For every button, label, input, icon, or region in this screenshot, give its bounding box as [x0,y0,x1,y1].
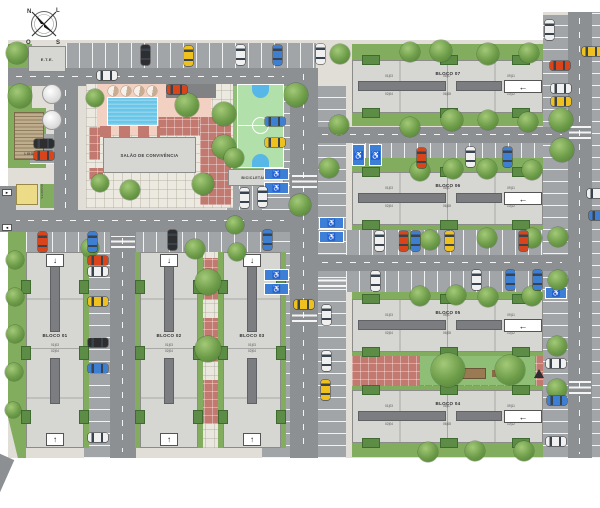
car-white-25 [466,147,475,167]
tree-8 [91,174,109,192]
bloco-04-notch-top-2 [512,385,530,395]
tree-14 [192,173,214,195]
tree-25 [430,40,452,62]
road-right-upper-dash [322,134,562,135]
water-tank-2 [42,110,62,130]
tree-51 [548,227,568,247]
car-white-19 [88,267,108,276]
bloco-03-units-bottom: 02|04 [223,350,281,353]
gate-arrow-out: ◄ [2,224,12,231]
car-yellow-12 [265,138,285,147]
bloco-01-corridor-2 [50,358,60,404]
bloco-01-notch-right-2 [79,410,89,424]
bloco-05-corridor-2 [456,320,502,330]
bloco-06-units-5: 10|12 [500,205,522,208]
salao-label: SALÃO DE CONVIVÊNCIA [121,153,179,158]
car-yellow-40 [582,47,600,56]
tree-4 [6,325,24,343]
tree-41 [446,285,466,305]
crosswalk-5 [292,312,317,322]
tree-27 [519,43,539,63]
bloco-02-entry-arrow-top: ↓ [160,254,178,267]
crosswalk-3 [569,381,591,394]
tree-19 [185,239,205,259]
car-blue-22 [88,364,108,373]
accessible-parking-icon-4: ♿ [264,168,289,180]
car-white-33 [472,270,481,290]
bloco-03-corridor-1 [247,258,257,332]
bloco-04-units-0: 01|03 [378,405,400,408]
bloco-07-units-0: 01|03 [378,75,400,78]
bloco-06-units-4: 09|11 [500,187,522,190]
bloco-01-corridor-1 [50,258,60,332]
tree-11 [175,93,199,117]
car-blue-26 [503,147,512,167]
parking-left-row [26,230,290,252]
road-top-dash [16,76,284,77]
bloco-07-corridor-1 [358,81,446,91]
tree-53 [547,336,567,356]
accessible-parking-icon-7: ♿ [264,283,289,295]
bloco-02-units-bottom: 02|04 [140,350,198,353]
bloco-04-units-5: 10|12 [500,423,522,426]
car-red-6 [167,85,187,94]
car-yellow-38 [321,380,330,400]
bloco-05-units-4: 09|11 [500,314,522,317]
car-dark-7 [34,139,54,148]
car-white-46 [546,437,566,446]
bloco-02-corridor-2 [164,358,174,404]
car-white-10 [258,187,267,207]
bloco-02-notch-left-2 [135,410,145,424]
playground-equipment [462,368,486,379]
car-white-37 [322,351,331,371]
bloco-02-corridor-1 [164,258,174,332]
ete-label: E.T.E. [41,57,53,62]
accessible-parking-icon-1: ♿ [369,144,382,166]
bloco-02-units-top: 01|03 [140,344,198,347]
car-yellow-43 [551,97,571,106]
site-plan: SALÃO DE CONVIVÊNCIA BICICLETÁRIO E.T.E.… [0,0,600,500]
tree-2 [6,251,24,269]
bloco-06-notch-bottom-0 [362,220,380,230]
car-red-18 [88,256,108,265]
tree-55 [195,269,221,295]
bloco-04-units-1: 02|04 [378,423,400,426]
tree-40 [410,286,430,306]
tree-22 [319,158,339,178]
accessible-parking-icon-0: ♿ [352,144,365,166]
tree-1 [8,84,32,108]
car-dark-16 [168,230,177,250]
bloco-07-units-2: 05|07 [436,75,458,78]
tree-35 [522,160,542,180]
car-red-41 [550,61,570,70]
bloco-06-corridor-1 [358,193,446,203]
bloco-06-units-3: 06|08 [436,205,458,208]
car-white-36 [322,305,331,325]
playground-marker [534,369,544,378]
car-dark-0 [141,45,150,65]
court-key-top [252,85,269,98]
road-right-lower-dash [322,262,562,263]
salao-de-convivencia: SALÃO DE CONVIVÊNCIA [103,137,196,173]
car-white-47 [587,189,600,198]
car-white-4 [316,44,325,64]
bloco-01-entry-arrow-bottom: ↑ [46,433,64,446]
tree-5 [5,363,23,381]
bloco-05-units-5: 10|12 [500,332,522,335]
tree-33 [443,159,463,179]
accessible-parking-icon-2: ♿ [319,217,344,229]
bloco-05-units-1: 02|04 [378,332,400,335]
bloco-06-notch-top-0 [362,167,380,177]
umbrella-2 [121,86,131,96]
car-white-42 [551,84,571,93]
crosswalk-2 [569,126,591,139]
tree-48 [514,441,534,461]
crosswalk-1 [111,236,135,248]
tree-20 [228,243,246,261]
red-path-left [89,127,100,160]
accessible-parking-icon-6: ♿ [264,269,289,281]
tree-16 [224,148,244,168]
car-blue-11 [265,117,285,126]
basketball-court [237,84,284,168]
tree-50 [550,138,574,162]
car-red-14 [38,232,47,252]
tree-31 [518,112,538,132]
guarita-label: GUARITA [38,184,44,206]
tree-34 [477,159,497,179]
compass-w: O [26,40,31,46]
bloco-02-label: BLOCO 02 [140,334,198,339]
car-blue-35 [533,270,542,290]
tree-49 [549,108,573,132]
car-blue-15 [88,232,97,252]
bloco-07-units-1: 02|04 [378,93,400,96]
tree-7 [86,89,104,107]
tree-30 [478,110,498,130]
tree-17 [289,194,311,216]
compass-n: N [27,9,31,15]
tree-28 [400,117,420,137]
bloco-07-units-3: 06|08 [436,93,458,96]
bloco-03-label: BLOCO 03 [223,334,281,339]
bloco-04-units-3: 06|08 [436,423,458,426]
road-bloco01-02-dash [122,238,123,452]
bloco-02-notch-right-2 [193,410,203,424]
car-white-23 [88,433,108,442]
bloco-01-label: BLOCO 01 [26,334,84,339]
bloco-01-units-top: 01|03 [26,344,84,347]
crosswalk-4 [318,278,346,287]
accessible-parking-icon-5: ♿ [264,182,289,194]
car-white-39 [545,20,554,40]
road-left-vertical-dash [65,90,66,208]
bloco-02-notch-left-0 [135,280,145,294]
car-yellow-1 [184,46,193,66]
car-red-28 [399,231,408,251]
bloco-01-notch-right-0 [79,280,89,294]
car-yellow-20 [88,297,108,306]
bloco-04-notch-bottom-1 [440,438,458,448]
car-blue-34 [506,270,515,290]
bloco-03-notch-right-2 [276,410,286,424]
bloco-03-units-top: 01|03 [223,344,281,347]
tree-12 [212,102,236,126]
tree-45 [495,355,525,385]
umbrella-1 [108,86,118,96]
bloco-01-units-bottom: 02|04 [26,350,84,353]
tree-0 [6,42,28,64]
bloco-04-notch-bottom-0 [362,438,380,448]
road-central-dash [303,74,304,452]
tree-38 [477,228,497,248]
tree-47 [465,441,485,461]
bloco-04-corridor-1 [358,411,446,421]
ete-building: E.T.E. [28,46,66,72]
parking-right-east [592,12,600,458]
car-blue-17 [263,230,272,250]
tree-52 [548,270,568,290]
compass-s: S [56,40,60,46]
car-white-44 [546,359,566,368]
bloco-03-entry-arrow-bottom: ↑ [243,433,261,446]
car-white-32 [371,271,380,291]
car-yellow-30 [445,231,454,251]
bloco-05-notch-top-0 [362,294,380,304]
tree-44 [431,353,465,387]
car-white-9 [240,188,249,208]
bloco-03-entry-arrow-top: ↓ [243,254,261,267]
court-key-bottom [252,154,269,167]
bloco-05-units-2: 05|07 [436,314,458,317]
tree-21 [329,115,349,135]
bloco-06-corridor-2 [456,193,502,203]
swimming-pool [107,97,158,126]
guarita [16,184,38,205]
bloco-04-units-4: 09|11 [500,405,522,408]
tree-29 [441,109,463,131]
bloco-04-corridor-2 [456,411,502,421]
red-path-h [158,117,203,136]
road-exit-diagonal [0,452,14,508]
car-red-8 [34,151,54,160]
tree-56 [195,336,221,362]
tree-18 [226,216,244,234]
bloco-05-notch-bottom-0 [362,347,380,357]
bloco-06-units-0: 01|03 [378,187,400,190]
crosswalk-0 [292,175,317,188]
tree-42 [478,287,498,307]
car-blue-29 [411,231,420,251]
tree-26 [477,43,499,65]
umbrella-3 [134,86,144,96]
bloco-06-notch-bottom-1 [440,220,458,230]
bloco-03-corridor-2 [247,358,257,404]
car-blue-48 [589,211,600,220]
tree-6 [5,402,21,418]
bloco-02-entry-arrow-bottom: ↑ [160,433,178,446]
car-white-27 [375,231,384,251]
umbrella-4 [147,86,157,96]
bloco-03-notch-left-2 [218,410,228,424]
car-blue-45 [547,396,567,405]
bloco-07-notch-bottom-0 [362,108,380,118]
tree-9 [120,180,140,200]
bloco-04-notch-top-0 [362,385,380,395]
bloco-01-entry-arrow-top: ↓ [46,254,64,267]
car-blue-3 [273,45,282,65]
car-white-2 [236,45,245,65]
bloco-07-units-4: 09|11 [500,75,522,78]
bloco-06-units-1: 02|04 [378,205,400,208]
bloco-07-corridor-2 [456,81,502,91]
car-dark-21 [88,338,108,347]
car-red-31 [519,231,528,251]
accessible-parking-icon-3: ♿ [319,231,344,243]
car-white-5 [97,71,117,80]
car-yellow-13 [294,300,314,309]
bloco-04-units-2: 05|07 [436,405,458,408]
bloco-05-corridor-1 [358,320,446,330]
tree-15 [284,83,308,107]
bloco-01-notch-left-2 [21,410,31,424]
compass-rose: N L O S [22,2,66,46]
tree-3 [6,288,24,306]
tree-46 [418,442,438,462]
bloco-05-units-3: 06|08 [436,332,458,335]
tree-24 [400,42,420,62]
car-red-24 [417,148,426,168]
red-pillars [100,126,160,137]
bloco-07-units-5: 10|12 [500,93,522,96]
gate-arrow-in: ► [2,189,12,196]
bloco-07-notch-top-0 [362,55,380,65]
water-tank-1 [42,84,62,104]
bloco-05-units-0: 01|03 [378,314,400,317]
tree-23 [330,44,350,64]
compass-e: L [56,8,60,14]
tree-37 [420,230,440,250]
bloco-06-units-2: 05|07 [436,187,458,190]
